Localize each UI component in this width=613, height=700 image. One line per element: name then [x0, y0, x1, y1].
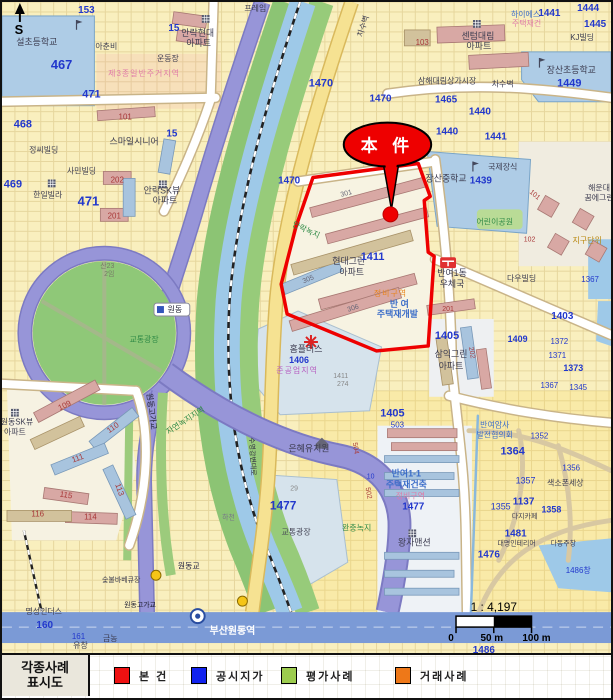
map-label: 발전협의회	[476, 430, 513, 440]
building-bar	[384, 552, 459, 559]
map-label: 차수벽	[492, 79, 514, 89]
map-label: 반여1-1	[392, 468, 421, 479]
apartment-icon	[11, 409, 19, 417]
map-label: 아파트	[339, 267, 364, 277]
building-bar	[384, 456, 459, 463]
map-label: 503	[391, 421, 405, 430]
map-label: 어린이공원	[476, 216, 513, 226]
map-label: 1470	[278, 175, 301, 186]
map-label: 원동SK뷰	[2, 418, 33, 427]
appraisal-map-page: 부산원동역	[0, 0, 613, 700]
map-label: 교통광장	[129, 334, 159, 344]
legend-label-transaction-case: 거래사례	[420, 668, 468, 684]
map-label: 색소폰세상	[547, 478, 584, 488]
map-label: 1372	[551, 337, 569, 346]
legend-label-appraisal-case: 평가사례	[306, 668, 354, 684]
map-label: 1481	[505, 528, 528, 539]
map-label: 주택재건	[512, 18, 541, 28]
map-label: 장산초등학교	[547, 65, 596, 75]
map-label: 101	[119, 113, 133, 122]
map-label: 아파트	[186, 38, 211, 48]
map-label: 1358	[541, 504, 561, 514]
map-label: 1345	[569, 383, 587, 392]
map-label: 하이에스	[511, 9, 540, 19]
map-label: 1367	[581, 275, 599, 284]
map-label: 1356	[562, 464, 580, 473]
map-label: 준공업지역	[276, 365, 317, 375]
map-label: 1367	[541, 381, 559, 390]
map-label: 정비구역	[396, 490, 425, 500]
map-label: 1355	[491, 501, 511, 511]
map-canvas: 부산원동역	[2, 2, 611, 655]
station-icon-dot	[195, 614, 200, 619]
map-label: 1440	[469, 107, 492, 118]
map-label: 1476	[478, 549, 501, 560]
legend-label-subject: 본 건	[139, 668, 168, 684]
map-label: 한일빌라	[33, 189, 63, 199]
map-label: 1411	[361, 251, 385, 263]
legend-swatch-official-price	[191, 667, 207, 684]
map-area: 부산원동역	[2, 2, 611, 655]
map-label: 주택재건축	[386, 478, 427, 489]
map-label: 왕자맨션	[398, 537, 431, 547]
apartment-icon	[408, 529, 416, 537]
map-label: 274	[337, 381, 349, 388]
map-label: 제3종일반주거지역	[108, 68, 180, 78]
map-label: 꿈에그린	[584, 192, 611, 202]
map-label: 15	[166, 129, 178, 140]
map-label: 1477	[270, 498, 297, 512]
scale-tick-100: 100 m	[522, 633, 550, 644]
legend-swatch-transaction-case	[395, 667, 411, 684]
legend-item-official-price: 공시지가	[191, 655, 264, 696]
map-label: 대명인테리어	[497, 538, 535, 547]
map-label: 153	[78, 5, 95, 16]
map-label: 우체국	[440, 279, 465, 289]
subject-marker-dot	[383, 207, 398, 222]
map-label: 사민빌딩	[67, 165, 96, 175]
map-label: 10	[367, 474, 375, 481]
map-label: 102	[524, 236, 536, 243]
map-label: 471	[82, 89, 100, 101]
map-label: 1486창	[566, 566, 592, 575]
map-label: 아파트	[467, 41, 492, 51]
map-label: 아파트	[153, 195, 178, 205]
map-label: KJ빌딩	[570, 32, 594, 42]
map-label: 1357	[516, 476, 536, 486]
map-label: 해운대	[588, 182, 610, 192]
building-bar	[387, 429, 457, 438]
legend-swatch-subject	[114, 667, 130, 684]
subway-exit-marker	[237, 596, 247, 606]
post-office-icon	[440, 257, 456, 268]
map-label: 1373	[563, 363, 583, 373]
map-label: 아춘비	[95, 41, 117, 51]
map-label: 103	[416, 38, 430, 47]
map-label: 1441	[485, 132, 508, 143]
legend-item-subject: 본 건	[114, 655, 168, 696]
legend-bar: 각종사례 표시도 본 건 공시지가 평가사례 거래사례	[2, 653, 611, 698]
map-label: 국제장식	[488, 161, 517, 171]
map-label: 스마일시니어	[110, 137, 159, 147]
compass-label: S	[15, 22, 24, 37]
map-label: 2임	[104, 270, 114, 278]
map-label: 원동교	[178, 561, 200, 570]
map-label: 202	[111, 175, 125, 184]
map-label: 안락SK뷰	[144, 184, 181, 195]
map-label: 정씨빌딩	[29, 145, 58, 155]
scale-ratio: 1 : 4,197	[471, 600, 518, 614]
building-bar	[391, 443, 457, 451]
map-label: 아파트	[439, 361, 464, 371]
map-label: 다동주창	[551, 538, 577, 547]
map-label: 1440	[436, 127, 459, 138]
map-label: 다지카페	[512, 511, 538, 520]
legend-item-transaction-case: 거래사례	[395, 655, 468, 696]
scale-bar-filled	[494, 616, 532, 627]
map-label: 은혜유치원	[288, 443, 329, 454]
map-label: 원동	[168, 305, 183, 314]
map-label: 1470	[369, 94, 392, 105]
legend-swatch-appraisal-case	[281, 667, 297, 684]
map-label: 1449	[557, 78, 581, 90]
map-label: 1470	[309, 78, 333, 90]
map-label: 1409	[508, 334, 528, 344]
map-label: 1411	[333, 373, 348, 380]
map-label: 프레임	[244, 4, 266, 13]
building-bar	[469, 52, 529, 69]
legend-title-line2: 표시도	[27, 676, 63, 691]
map-label: 467	[51, 57, 73, 72]
map-label: 1445	[584, 19, 607, 30]
map-label: 1364	[500, 446, 525, 458]
map-label: 161	[72, 632, 86, 641]
map-label: 1441	[538, 8, 561, 19]
map-label: 116	[31, 509, 44, 518]
map-label: 주택재개발	[377, 308, 419, 319]
map-label: 1371	[549, 351, 567, 360]
map-label: 114	[84, 512, 97, 521]
map-label: 1352	[531, 432, 549, 441]
map-label: 설초등학교	[16, 37, 57, 47]
building-bar	[384, 588, 459, 595]
callout-text: 本 件	[361, 136, 414, 156]
map-label: 반여암사	[480, 420, 510, 430]
apartment-icon	[473, 20, 481, 28]
building-bar	[123, 178, 135, 216]
map-label: 장산중학교	[426, 173, 467, 183]
map-label: 교통광장	[281, 526, 311, 536]
subway-exit-marker	[151, 570, 161, 580]
map-label: 지구단위	[573, 235, 602, 245]
map-label: 삼익그린	[435, 348, 468, 359]
map-label: 아파트	[4, 427, 26, 437]
map-label: 1465	[435, 95, 458, 106]
map-label: 471	[78, 193, 100, 208]
map-label: 1405	[380, 408, 404, 420]
map-label: 201	[442, 306, 454, 313]
map-label: 반 여	[390, 298, 409, 309]
map-label: 469	[4, 178, 22, 190]
map-label: 반여1동	[437, 267, 467, 278]
map-label: 숯불바베큐장	[102, 575, 141, 584]
map-label: 1439	[470, 175, 493, 186]
map-label: 금농	[103, 634, 118, 643]
legend-item-appraisal-case: 평가사례	[281, 655, 354, 696]
map-label: 홈플러스	[290, 343, 323, 354]
apartment-icon	[48, 179, 56, 187]
map-label: 29	[290, 485, 298, 492]
map-label: 1137	[513, 496, 535, 507]
map-label: 산23	[100, 261, 114, 270]
scale-tick-0: 0	[448, 633, 454, 644]
legend-title-line1: 각종사례	[21, 661, 69, 676]
map-label: 15	[168, 23, 180, 34]
map-label: 160	[36, 620, 53, 631]
map-label: 1406	[289, 355, 309, 365]
legend-title: 각종사례 표시도	[2, 655, 90, 696]
map-label: 468	[14, 119, 32, 131]
map-label: 센텀대림	[461, 30, 494, 41]
map-label: 운동장	[157, 53, 180, 63]
map-label: 1444	[577, 3, 600, 14]
map-label: 1403	[551, 311, 574, 322]
map-label: 다우빌딩	[507, 273, 536, 283]
map-label: 201	[108, 211, 122, 220]
apartment-icon	[202, 15, 210, 23]
map-label: 1405	[435, 330, 459, 342]
map-label: 1477	[402, 501, 425, 512]
map-label: 유창	[73, 641, 88, 650]
map-label: 완충녹지	[342, 523, 371, 532]
scale-tick-50: 50 m	[480, 633, 503, 644]
map-label: 하천	[222, 512, 235, 521]
legend-label-official-price: 공시지가	[216, 668, 264, 684]
map-label: 명성인더스	[25, 606, 62, 616]
station-name: 부산원동역	[210, 624, 256, 637]
map-label: 안락현대	[181, 27, 214, 38]
map-label: 원동고가교	[124, 600, 157, 609]
building-bar	[384, 570, 454, 577]
map-label: 삼해대림상가시장	[418, 76, 477, 86]
map-label: 정비구역	[374, 288, 407, 298]
